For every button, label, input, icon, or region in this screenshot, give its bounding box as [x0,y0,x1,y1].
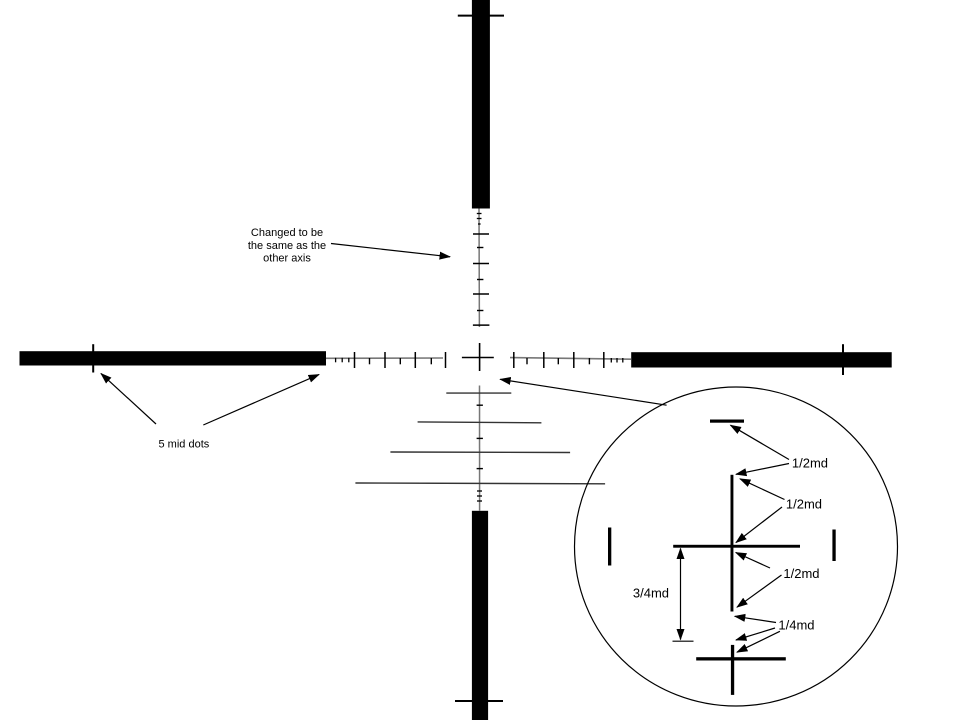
svg-text:1/4md: 1/4md [778,618,814,633]
svg-text:other axis: other axis [263,253,311,265]
svg-text:1/2md: 1/2md [786,496,822,511]
svg-text:3/4md: 3/4md [633,585,669,600]
svg-text:1/2md: 1/2md [792,455,828,470]
svg-text:5 mid dots: 5 mid dots [159,439,210,451]
svg-text:Changed to be: Changed to be [251,227,323,239]
svg-text:the same as the: the same as the [248,240,326,252]
svg-text:1/2md: 1/2md [783,566,819,581]
